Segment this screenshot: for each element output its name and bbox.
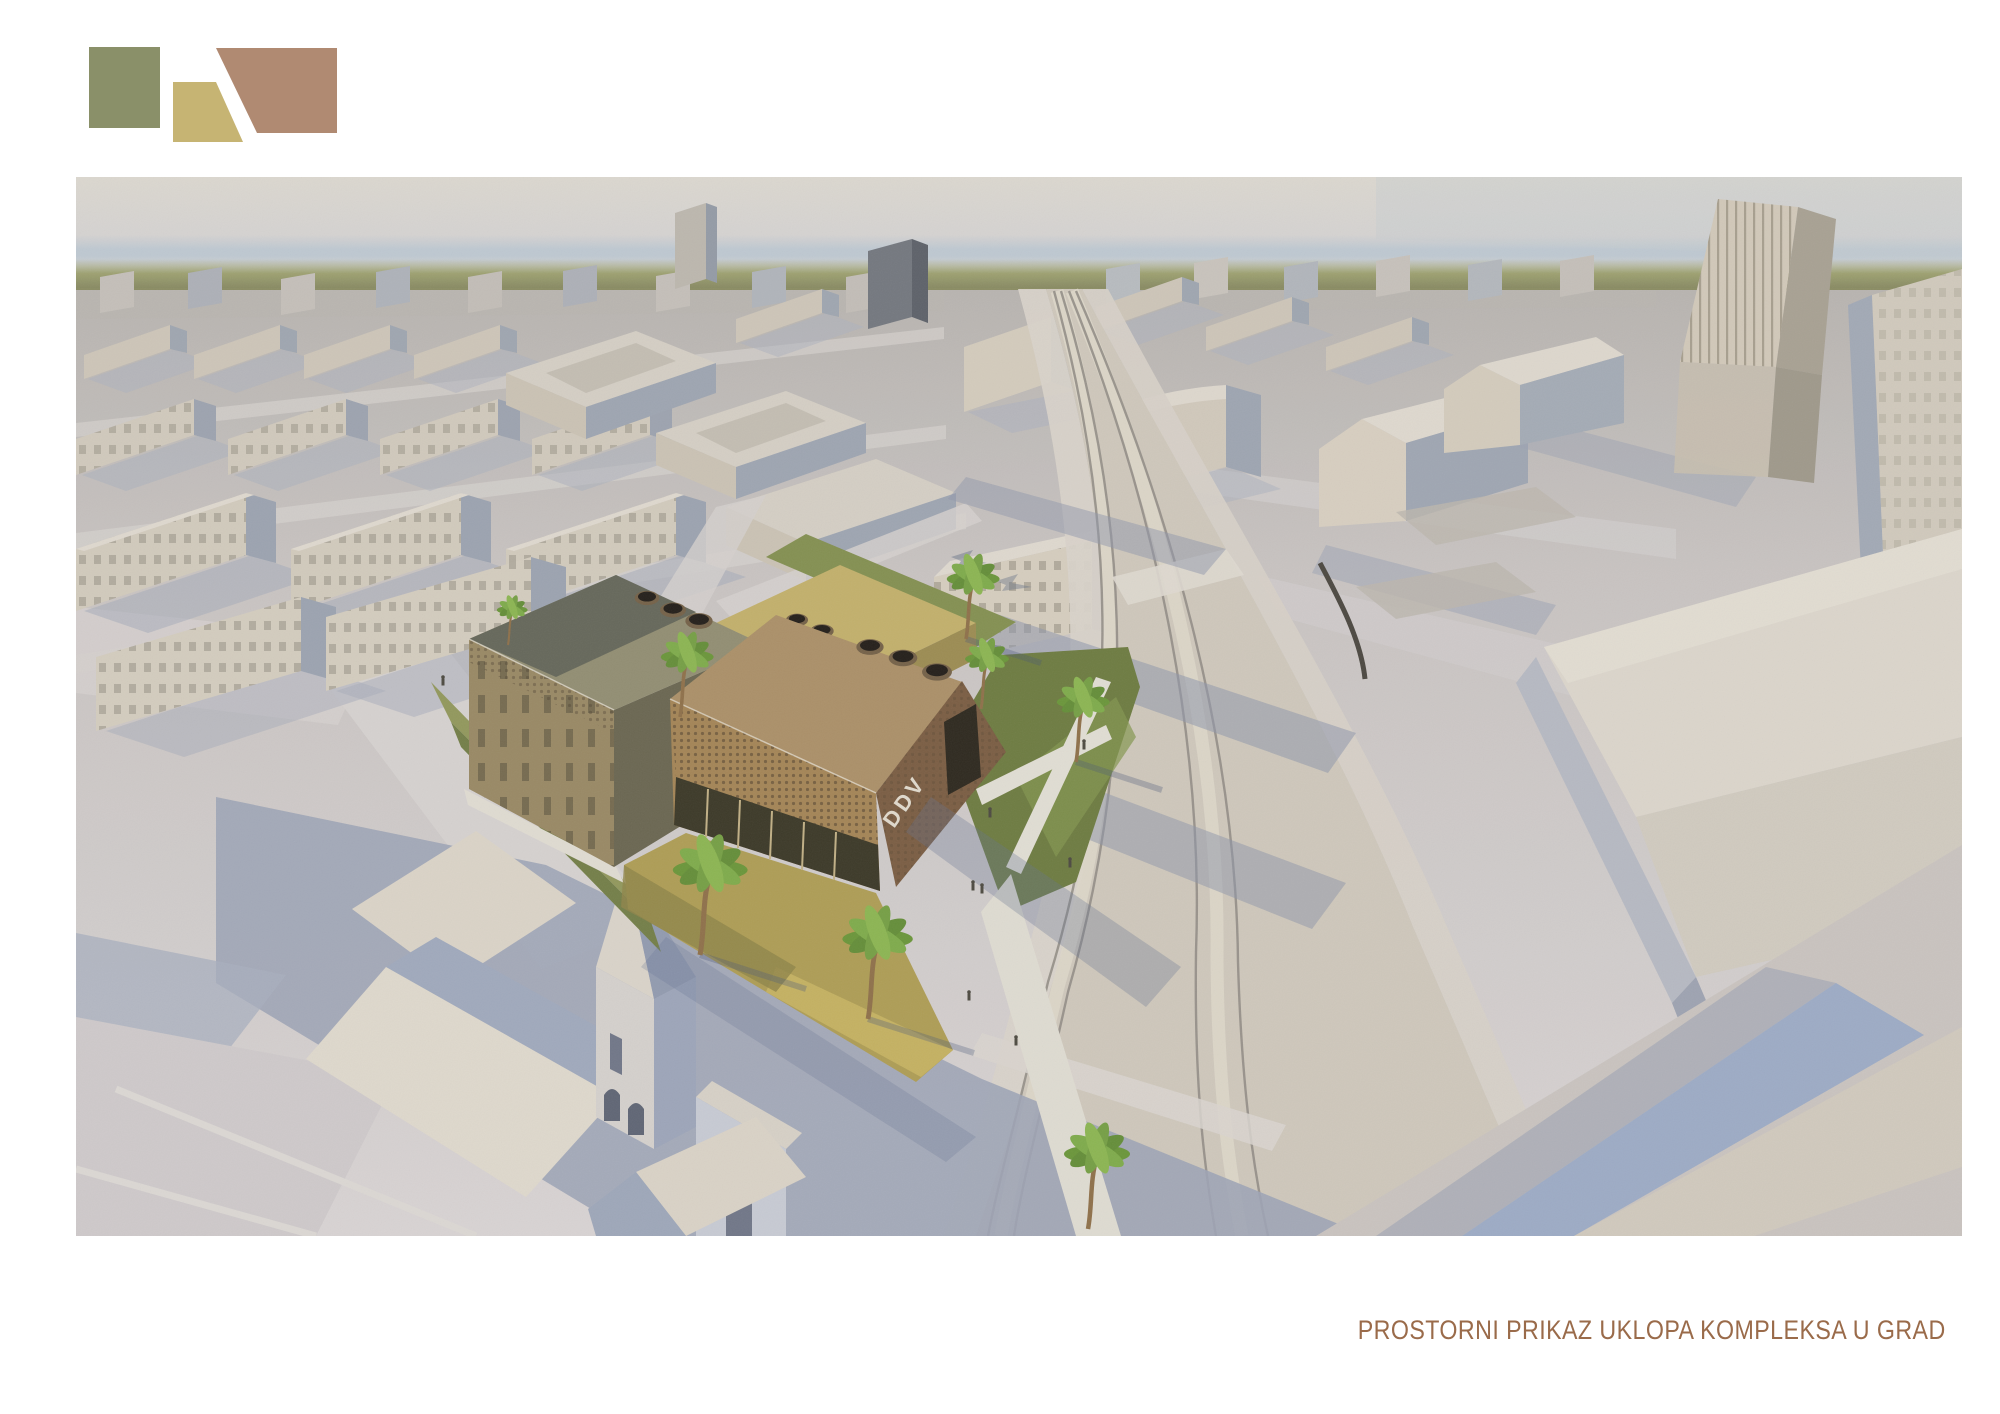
logo-trapezoid-brown bbox=[216, 48, 337, 133]
caption: PROSTORNI PRIKAZ UKLOPA KOMPLEKSA U GRAD bbox=[1358, 1310, 1946, 1350]
presentation-board: DDV bbox=[0, 0, 2000, 1414]
logo bbox=[89, 47, 337, 142]
logo-wedge-tan bbox=[173, 82, 243, 142]
logo-square-green bbox=[89, 47, 160, 128]
atmosphere-overlay bbox=[76, 177, 1962, 1236]
city-render: DDV bbox=[76, 177, 1962, 1236]
